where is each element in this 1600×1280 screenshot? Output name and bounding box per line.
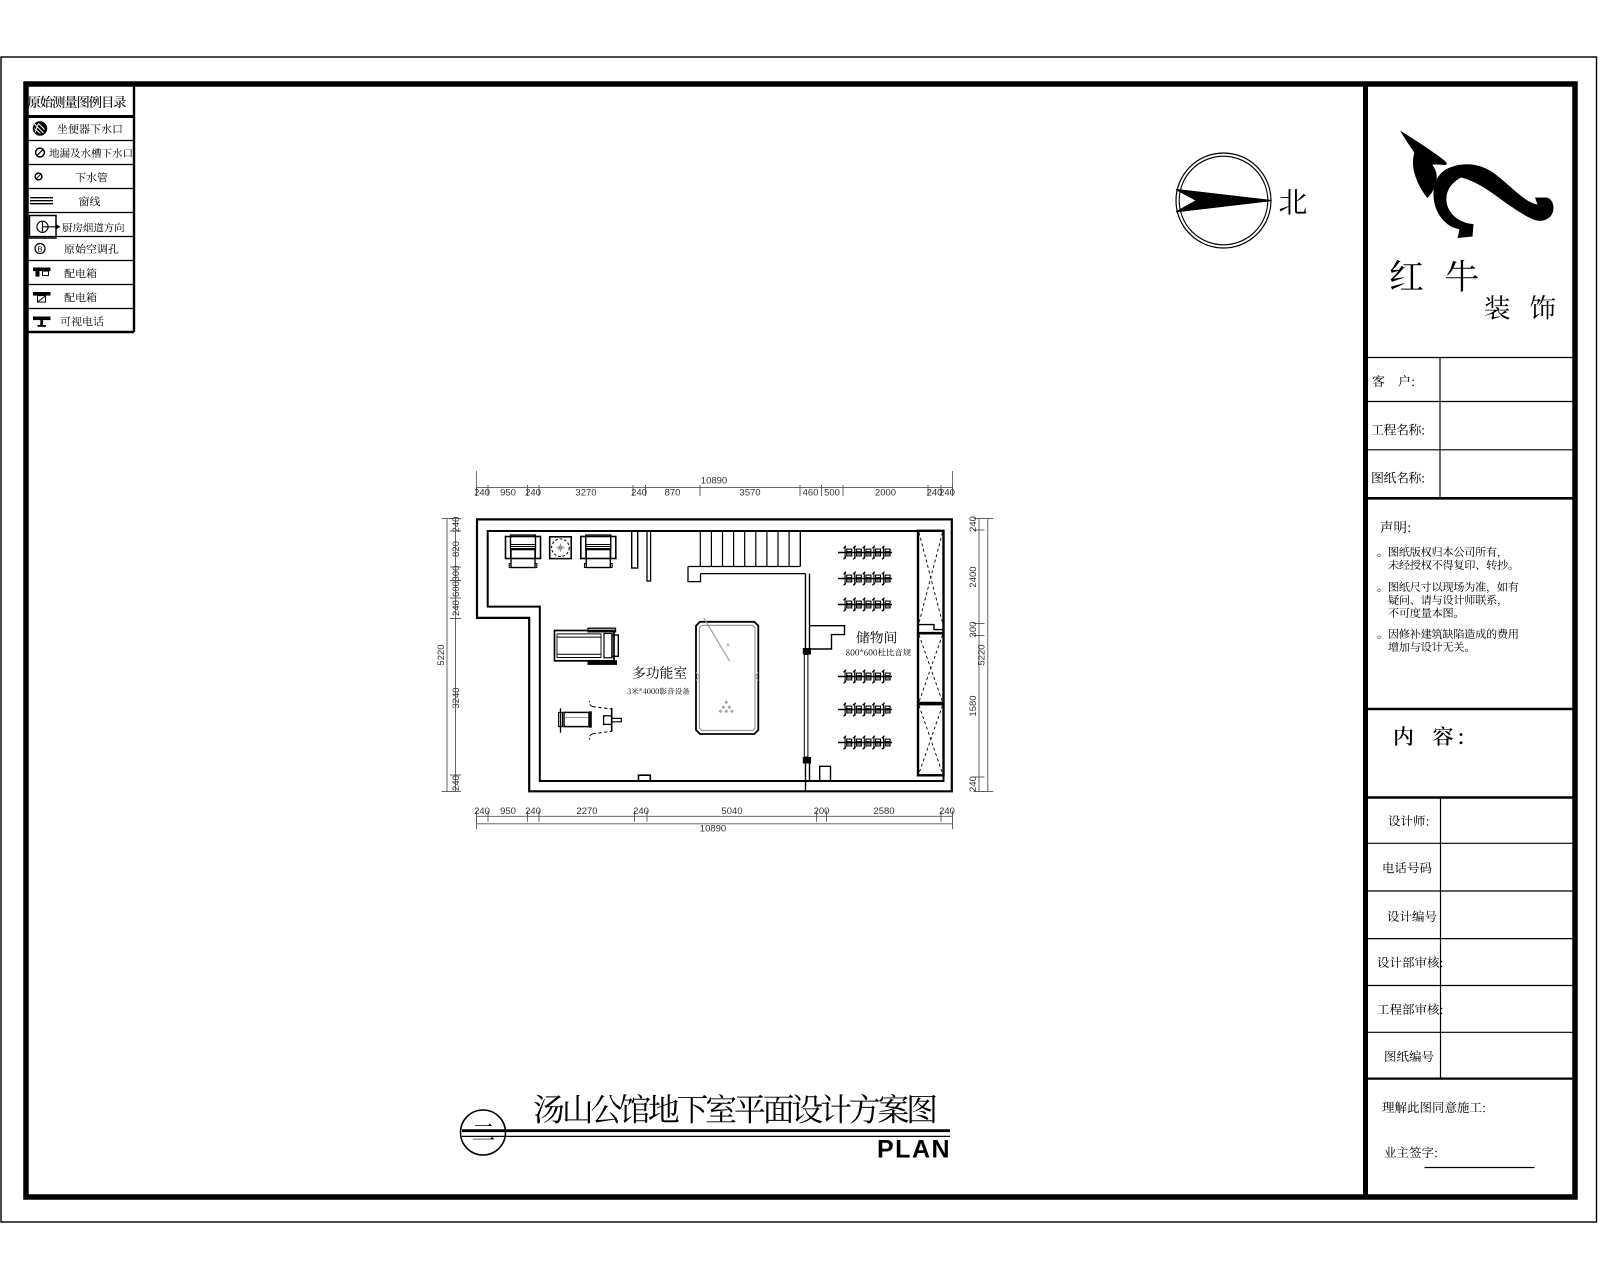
svg-text:200: 200 — [814, 806, 830, 817]
svg-text:5220: 5220 — [436, 644, 447, 665]
svg-text:240: 240 — [474, 806, 490, 817]
svg-text:2580: 2580 — [873, 806, 894, 817]
svg-text:240: 240 — [968, 516, 979, 532]
svg-text:B: B — [38, 245, 43, 254]
svg-text:10890: 10890 — [700, 824, 726, 835]
svg-text:240: 240 — [525, 488, 541, 499]
svg-text:600: 600 — [451, 581, 462, 597]
svg-text:950: 950 — [500, 806, 516, 817]
svg-text:300: 300 — [968, 622, 979, 638]
svg-text:5040: 5040 — [721, 806, 742, 817]
svg-text:500: 500 — [824, 488, 840, 499]
svg-text:240: 240 — [968, 776, 979, 792]
svg-text:240: 240 — [631, 488, 647, 499]
svg-text:820: 820 — [451, 541, 462, 557]
svg-text:240: 240 — [633, 806, 649, 817]
svg-text:2000: 2000 — [875, 488, 896, 499]
svg-text:3570: 3570 — [739, 488, 760, 499]
svg-text:240: 240 — [451, 775, 462, 791]
svg-text:300: 300 — [451, 566, 462, 582]
svg-text:3240: 3240 — [451, 687, 462, 708]
svg-text:10890: 10890 — [701, 476, 727, 487]
svg-text:240: 240 — [451, 517, 462, 533]
svg-text:870: 870 — [665, 488, 681, 499]
svg-text:1580: 1580 — [968, 695, 979, 716]
svg-text:240: 240 — [451, 600, 462, 616]
svg-text:2270: 2270 — [576, 806, 597, 817]
svg-text:240: 240 — [939, 488, 955, 499]
svg-text:240: 240 — [474, 488, 490, 499]
svg-text:5220: 5220 — [977, 644, 988, 665]
svg-text:950: 950 — [500, 488, 516, 499]
svg-text:240: 240 — [939, 806, 955, 817]
svg-text:460: 460 — [803, 488, 819, 499]
svg-text:3270: 3270 — [575, 488, 596, 499]
svg-text:240: 240 — [525, 806, 541, 817]
svg-text:PLAN: PLAN — [877, 1136, 951, 1164]
svg-text:2400: 2400 — [968, 566, 979, 587]
